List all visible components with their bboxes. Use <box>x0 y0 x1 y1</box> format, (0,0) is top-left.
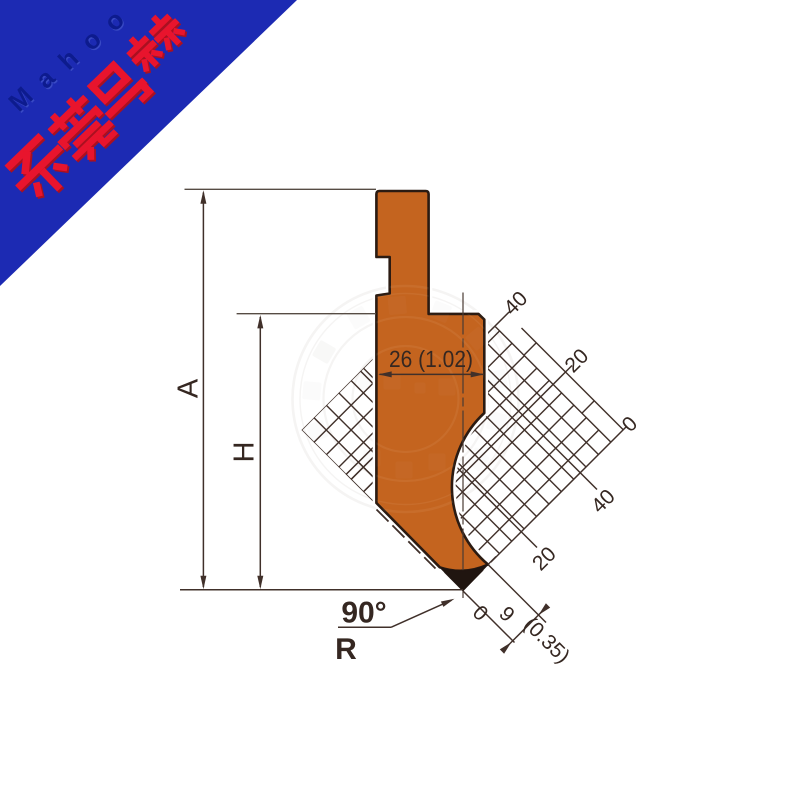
svg-text:90°: 90° <box>341 597 386 630</box>
svg-text:H: H <box>229 442 261 463</box>
svg-text:R: R <box>335 633 357 666</box>
svg-text:A: A <box>173 378 205 398</box>
svg-text:26 (1.02): 26 (1.02) <box>389 346 473 372</box>
